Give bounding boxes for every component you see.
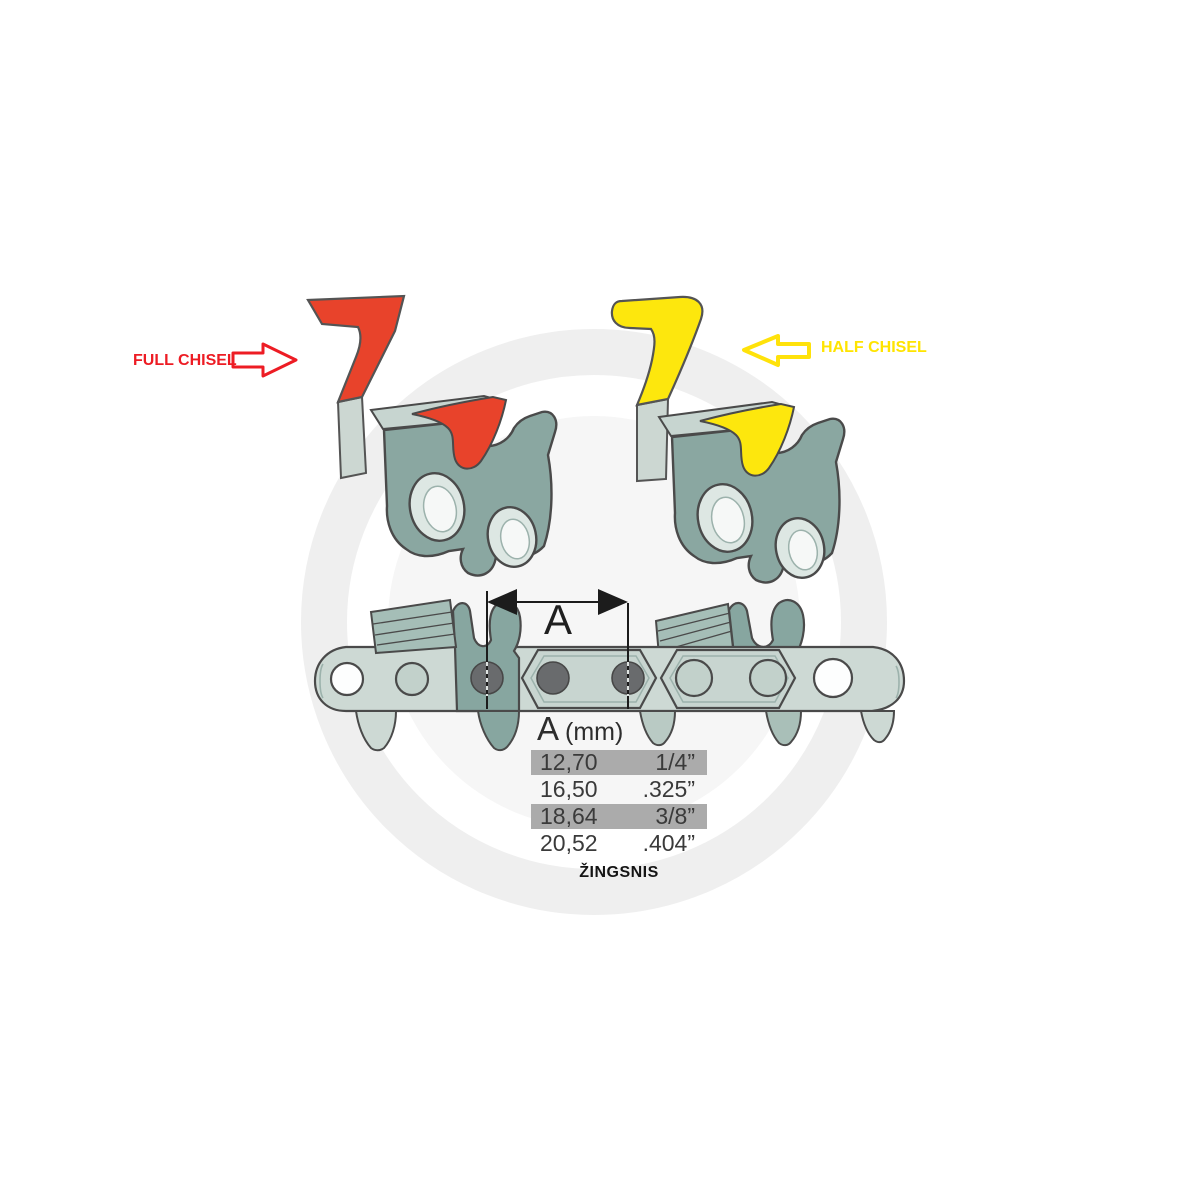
- pitch-inch-value: .404”: [643, 831, 695, 856]
- end-link-hole: [814, 659, 852, 697]
- full-chisel-cutter-link: [371, 396, 556, 575]
- drive-tang: [766, 711, 801, 745]
- table-row: 18,64 3/8”: [531, 804, 707, 829]
- link-hole: [750, 660, 786, 696]
- half-chisel-shank: [637, 399, 668, 481]
- pitch-mm-value: 18,64: [540, 804, 598, 829]
- rivet: [537, 662, 569, 694]
- table-header-symbol: A: [537, 710, 559, 747]
- full-chisel-arrow-icon: [233, 344, 296, 376]
- end-link-hole: [331, 663, 363, 695]
- table-row: 12,70 1/4”: [531, 750, 707, 775]
- cutter-plate: [371, 600, 456, 653]
- half-chisel-arrow-icon: [744, 336, 809, 365]
- half-chisel-label: HALF CHISEL: [821, 339, 927, 357]
- table-row: 16,50 .325”: [531, 777, 707, 802]
- link-hole: [676, 660, 712, 696]
- pitch-table-header: A(mm): [531, 710, 707, 748]
- pitch-mm-value: 16,50: [540, 777, 598, 802]
- link-hole: [396, 663, 428, 695]
- dimension-a-label: A: [544, 596, 572, 644]
- drive-tang: [861, 711, 894, 742]
- chain-diagram-graphic: [0, 0, 1188, 1188]
- full-chisel-red-shape: [308, 296, 404, 402]
- product-diagram-canvas: APB AGRO PARTS BALTIJA: [0, 0, 1188, 1188]
- full-chisel-shank: [338, 397, 366, 478]
- pitch-inch-value: .325”: [643, 777, 695, 802]
- pitch-inch-value: 1/4”: [655, 750, 695, 775]
- full-chisel-label: FULL CHISEL: [133, 352, 237, 370]
- table-header-unit: (mm): [565, 718, 623, 746]
- pitch-table: A(mm) 12,70 1/4” 16,50 .325” 18,64 3/8” …: [531, 710, 707, 882]
- pitch-mm-value: 20,52: [540, 831, 598, 856]
- pitch-inch-value: 3/8”: [655, 804, 695, 829]
- pitch-caption: ŽINGSNIS: [531, 864, 707, 882]
- pitch-mm-value: 12,70: [540, 750, 598, 775]
- table-row: 20,52 .404”: [531, 831, 707, 856]
